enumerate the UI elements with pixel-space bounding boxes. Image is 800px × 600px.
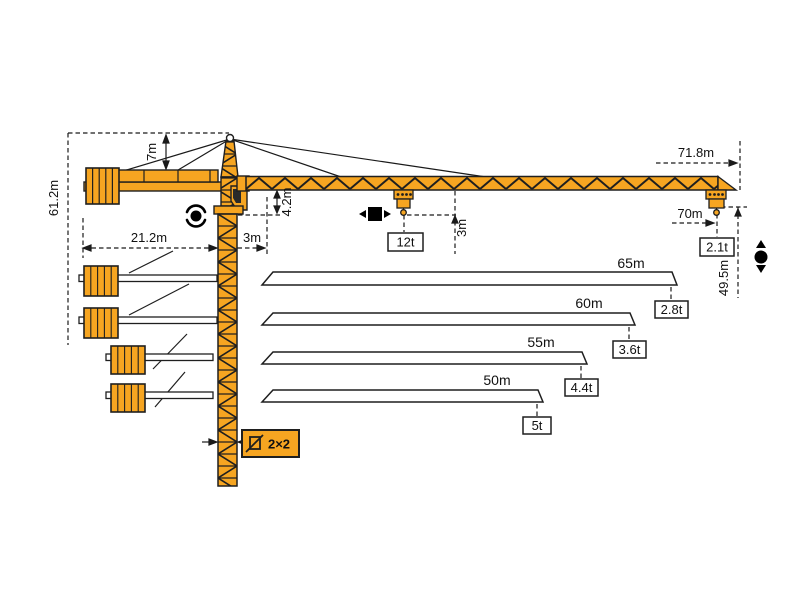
mast-width-left-arrow <box>209 439 217 445</box>
apex-pulley <box>227 135 234 142</box>
jib-capacity-55m: 4.4t <box>571 380 593 395</box>
tower-head <box>221 141 238 177</box>
jib-length-55m: 55m <box>527 334 554 350</box>
jib-option-55m <box>262 352 587 364</box>
jib-tie-1 <box>230 139 347 179</box>
crane-load-diagram: 61.2m 7m 21.2m 3m 4.2m 3m 71.8m 70m 49.5… <box>0 0 800 600</box>
jib-length-60m: 60m <box>575 295 602 311</box>
rear-clearance-label: 3m <box>243 230 261 245</box>
crane-structure <box>79 135 736 487</box>
arrow-left-21m <box>83 245 91 251</box>
ballast-rows <box>79 251 217 412</box>
jib-option-60m <box>262 313 635 325</box>
total-height-label: 61.2m <box>46 180 61 216</box>
counterjib-platform <box>118 170 218 182</box>
jib-option-65m <box>262 272 677 285</box>
slewing-icon <box>187 206 205 227</box>
jib-capacity-50m: 5t <box>532 418 543 433</box>
arrow-up-49m <box>735 209 741 216</box>
arrow-right-3m <box>257 245 265 251</box>
jib-length-50m: 50m <box>483 372 510 388</box>
arrow-right-21m <box>209 245 217 251</box>
jib-length-options <box>262 272 677 402</box>
jib-foot-offset-label: 4.2m <box>279 188 294 217</box>
counterjib-counterweight <box>86 168 119 204</box>
hoisting-icon <box>755 240 768 273</box>
ballast-blocks <box>84 266 145 412</box>
hook-clearance-label: 3m <box>454 219 469 237</box>
diagram-svg: 61.2m 7m 21.2m 3m 4.2m 3m 71.8m 70m 49.5… <box>0 0 800 600</box>
tower-mast <box>218 214 237 486</box>
trolley-mid <box>394 190 413 215</box>
trolley-tip <box>706 190 726 215</box>
jib-capacity-60m: 3.6t <box>619 342 641 357</box>
tip-radius-label: 70m <box>677 206 702 221</box>
hook-tip <box>714 210 720 216</box>
slewing-platform <box>214 206 243 214</box>
hook-height-label: 49.5m <box>716 260 731 296</box>
arrow-right-71m <box>729 160 737 166</box>
capacity-boxes <box>388 233 734 434</box>
arrow-right-70m <box>706 220 714 226</box>
hook-mid <box>401 210 407 216</box>
tip-capacity-label: 2.1t <box>706 240 728 255</box>
head-height-label: 7m <box>144 143 159 161</box>
jib-length-65m: 65m <box>617 255 644 271</box>
jib-capacity-65m: 2.8t <box>661 302 683 317</box>
jib-tip <box>718 177 736 191</box>
max-capacity-label: 12t <box>396 235 414 250</box>
counterjib-radius-label: 21.2m <box>131 230 167 245</box>
jib <box>246 177 718 191</box>
jib-tie-2 <box>230 139 486 177</box>
trolley-travel-icon <box>359 207 391 221</box>
max-radius-label: 71.8m <box>678 145 714 160</box>
mast-section-label: 2×2 <box>268 437 290 452</box>
jib-option-50m <box>262 390 543 402</box>
